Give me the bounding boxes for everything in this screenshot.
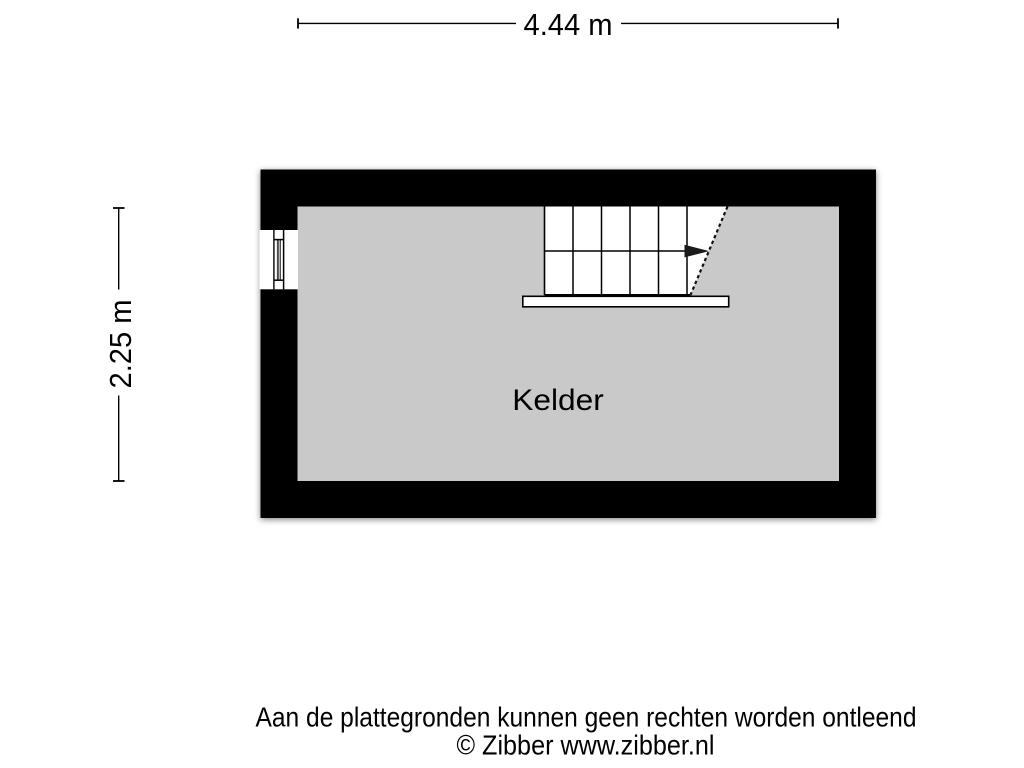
svg-text:© Zibber www.zibber.nl: © Zibber www.zibber.nl	[457, 730, 715, 761]
svg-text:4.44 m: 4.44 m	[524, 8, 613, 42]
svg-text:Aan de plattegronden kunnen ge: Aan de plattegronden kunnen geen rechten…	[256, 702, 917, 733]
svg-text:Kelder: Kelder	[512, 384, 604, 417]
svg-text:2.25 m: 2.25 m	[104, 300, 138, 389]
